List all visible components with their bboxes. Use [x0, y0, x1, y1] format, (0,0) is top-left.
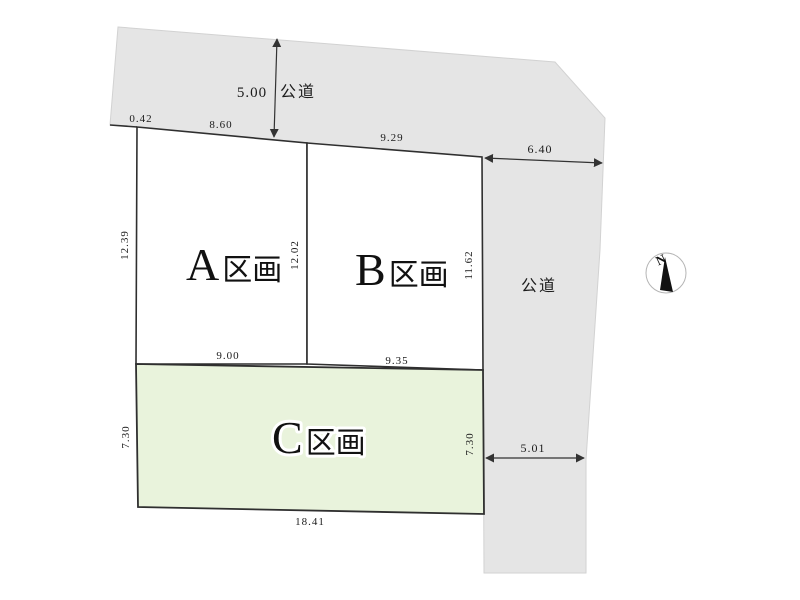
plot-layout-canvas: 5.00 公道 0.42 8.60 9.29 6.40 12.39 12.02 … [0, 0, 800, 600]
dim-c-east-side: 7.30 [464, 432, 476, 455]
dim-road-east-frontage: 6.40 [528, 142, 553, 156]
dim-top-road-width: 5.00 [237, 85, 267, 101]
right-road-label: 公道 [521, 277, 557, 295]
dim-b-bottom: 9.35 [385, 355, 408, 367]
top-road-label: 公道 [280, 83, 316, 101]
dim-b-east-side: 11.62 [463, 250, 475, 279]
dim-a-frontage: 8.60 [209, 119, 232, 131]
dim-right-road-width: 5.01 [521, 441, 546, 455]
plot-b-shape [307, 143, 483, 370]
dim-b-frontage: 9.29 [380, 132, 403, 144]
dim-ab-divider: 12.02 [289, 240, 301, 270]
plot-layout-svg: 5.00 公道 0.42 8.60 9.29 6.40 12.39 12.02 … [0, 0, 800, 600]
dim-c-west-side: 7.30 [120, 425, 132, 448]
north-compass: N [646, 251, 686, 293]
dim-a-bottom: 9.00 [216, 350, 239, 362]
plot-a-shape [136, 127, 307, 364]
dim-c-bottom: 18.41 [295, 516, 325, 528]
dim-a-west-side: 12.39 [119, 230, 131, 260]
dim-frontage-jog: 0.42 [129, 113, 152, 125]
